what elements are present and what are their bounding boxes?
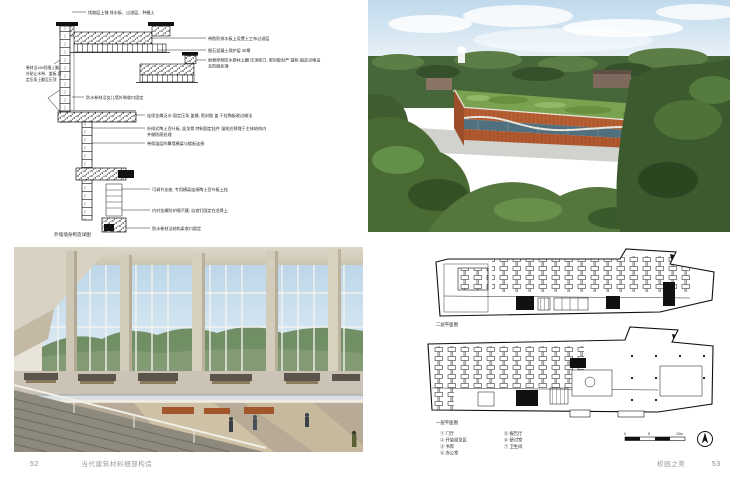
section-title: 校园之美	[657, 461, 685, 468]
plan-lower: 一层平面图	[428, 327, 713, 426]
floor-plans: 二层平面图	[420, 246, 730, 458]
annotation: 耐根穿刺防水卷材上翻 压顶收口, 密封胶封严 锚栓-固定点埋设	[208, 57, 320, 63]
plan-lower-label: 一层平面图	[436, 420, 459, 426]
legend-item: ⑤ 报告厅	[504, 430, 523, 437]
annotation: 外倾式陶土百叶板, 竖龙骨 特制固定挂件 锚栓应预埋于主体结构内	[147, 125, 266, 131]
scale-label-end: 10m	[676, 432, 683, 436]
annotation: 并做防腐处理	[147, 131, 172, 137]
page-number-left: 52	[30, 461, 39, 468]
roof-assembly	[56, 22, 174, 53]
annotation: 找坡层上铺 排水板、过滤层、种植土	[88, 9, 155, 15]
north-arrow	[698, 432, 713, 447]
legend-item: ④ 办公室	[440, 450, 459, 457]
right-page: 二层平面图	[365, 0, 730, 482]
plan-upper-label: 二层平面图	[436, 322, 459, 328]
scale-bar: 0 5 10m	[624, 432, 685, 441]
legend-item: ② 开架阅览区	[440, 437, 468, 444]
annotation: 定压条上翻至压顶	[26, 77, 57, 82]
right-footer: 校园之美 53	[657, 458, 721, 468]
annotation: 带保温层的幕墙横梁与楼板连接	[147, 140, 204, 146]
benches	[162, 407, 274, 414]
secondary-roof	[136, 52, 198, 83]
legend-item: ③ 书库	[440, 443, 455, 450]
plan-legend: ① 门厅 ② 开架阅览区 ③ 书库 ④ 办公室 ⑤ 报告厅 ⑥ 研讨室 ⑦ 卫生…	[440, 430, 523, 457]
legend-item: ⑥ 研讨室	[504, 437, 523, 444]
annotation: 带肋防排水板上设置土工布过滤层	[208, 35, 269, 41]
aerial-photo	[368, 0, 730, 232]
legend-item: ① 门厅	[440, 430, 455, 437]
annotation: 及防腐处理	[208, 63, 228, 69]
annotation: 细石混凝土保护层 40厚	[208, 47, 251, 53]
annotation: 可调节支座, 专用横梁连接陶土百叶板上挂	[152, 186, 228, 192]
annotation: 连续金属泛水-固定压条 盖缝, 密封胶 盖 干挂陶板收边做法	[147, 112, 252, 118]
detail-drawing: 找坡层上铺 排水板、过滤层、种植土 带肋防排水板上设置土工布过滤层 细石混凝土保…	[0, 0, 365, 242]
legend-item: ⑦ 卫生间	[504, 443, 522, 450]
annotation: 防水卷材沿女儿墙外侧收口固定	[86, 94, 143, 100]
page-number-right: 53	[712, 461, 721, 468]
interior-photo	[14, 247, 363, 452]
scale-label-start: 0	[624, 432, 626, 436]
annotation: 内衬金属防护隔汽膜, 自攻钉固定在龙骨上	[152, 207, 228, 213]
plan-upper: 二层平面图	[436, 249, 714, 328]
mid-column	[82, 122, 92, 168]
scale-label-mid: 5	[648, 432, 650, 436]
lower-assembly	[76, 168, 134, 232]
mid-slab	[58, 111, 136, 123]
left-page: 找坡层上铺 排水板、过滤层、种植土 带肋防排水板上设置土工布过滤层 细石混凝土保…	[0, 0, 365, 482]
book-title: 当代建筑材料细部构造	[81, 461, 152, 468]
annotation: 卷材沿±50挡墙上翻,	[26, 65, 60, 70]
left-footer: 52 当代建筑材料细部构造	[30, 458, 152, 468]
annotation: 防水卷材沿结构梁收口固定	[152, 225, 201, 231]
annotation: 外贴止水带、盖板-固	[26, 71, 62, 76]
detail-caption: 外墙墙身构造详图	[54, 231, 91, 238]
